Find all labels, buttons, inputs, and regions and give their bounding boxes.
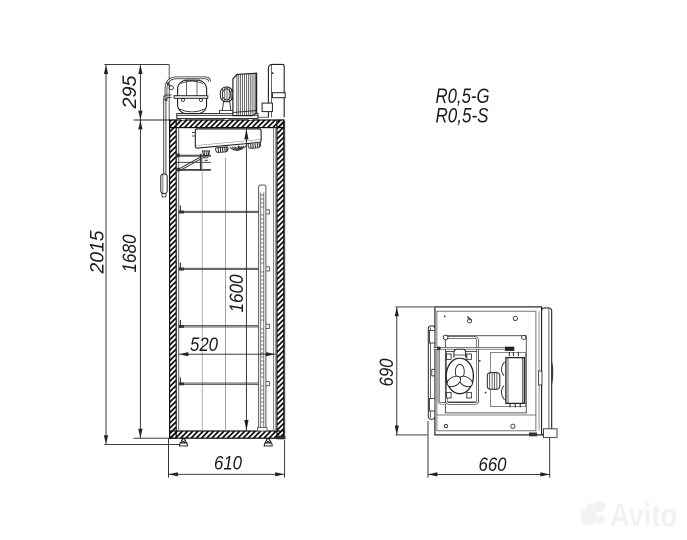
svg-text:295: 295 [120,75,141,109]
svg-text:690: 690 [377,358,398,386]
svg-text:660: 660 [479,455,507,476]
svg-text:610: 610 [214,454,242,475]
svg-text:1600: 1600 [227,274,248,312]
svg-text:2015: 2015 [87,230,108,274]
svg-text:R0,5-S: R0,5-S [436,105,489,128]
svg-text:1680: 1680 [120,234,141,272]
svg-text:520: 520 [190,335,218,356]
svg-text:Avito: Avito [610,497,677,534]
